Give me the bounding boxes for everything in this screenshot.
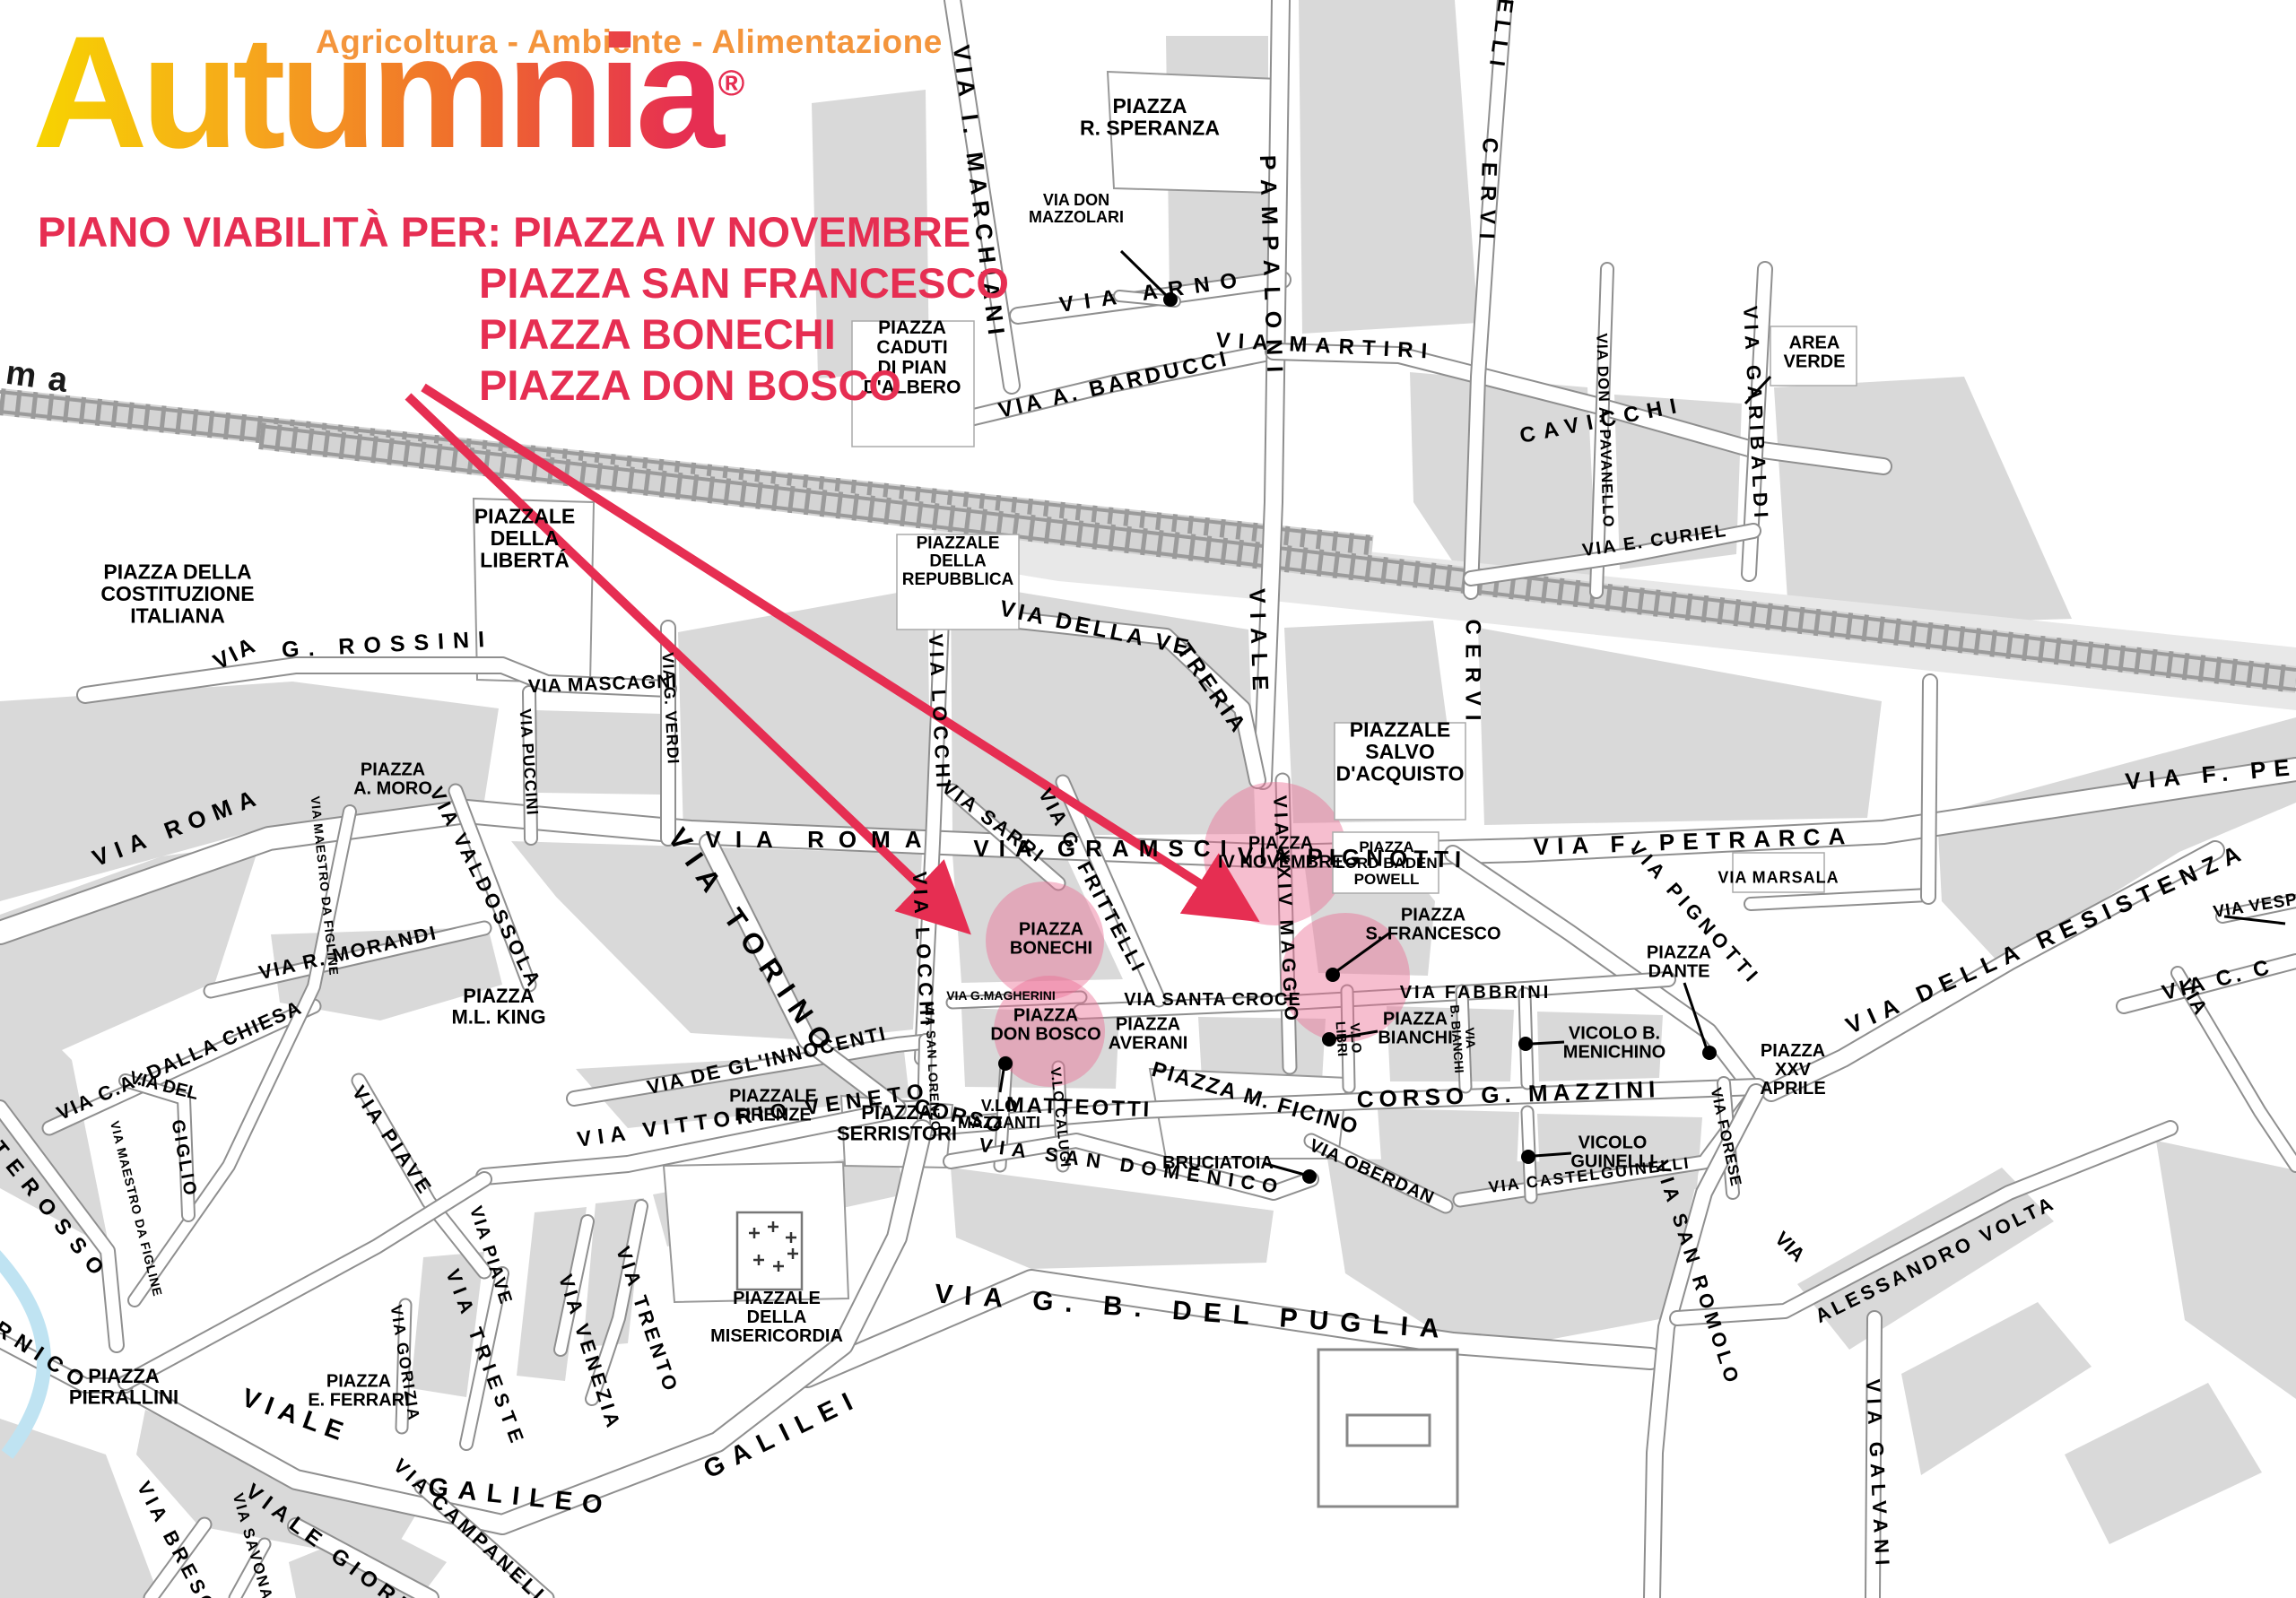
- label-via-a-barducci: VIA A. BARDUCCI: [996, 346, 1232, 423]
- label-via-santa-croce: VIA SANTA CROCE: [1124, 990, 1301, 1010]
- label-cervi: CERVI: [1474, 137, 1501, 248]
- label-piazza-dante: PIAZZADANTE: [1647, 942, 1711, 981]
- label-via: VIA: [1770, 1227, 1810, 1266]
- label-piazza-bianchi: PIAZZABIANCHI: [1378, 1009, 1452, 1047]
- label-via-roma: VIA ROMA: [705, 826, 935, 853]
- title-place-3: PIAZZA BONECHI: [38, 308, 1009, 360]
- viability-title: PIANO VIABILITÀ PER: PIAZZA IV NOVEMBRE …: [38, 206, 1009, 411]
- label-piazza-a-moro: PIAZZAA. MORO: [353, 760, 432, 798]
- label-via-g-magherini: VIA G.MAGHERINI: [946, 988, 1056, 1003]
- leader-dot: [1702, 1046, 1717, 1060]
- label-piazza-m-l-king: PIAZZAM.L. KING: [451, 985, 545, 1028]
- label-elli: ELLI: [1483, 0, 1518, 74]
- label-via-marsala: VIA MARSALA: [1718, 868, 1839, 886]
- label-vicolo-b-menichino: VICOLO B.MENICHINO: [1563, 1023, 1665, 1062]
- block: [1901, 1302, 2092, 1475]
- label-piazza-averani: PIAZZAAVERANI: [1109, 1014, 1188, 1053]
- block: [536, 710, 662, 795]
- road: [1928, 682, 1930, 897]
- title-place-1: PIAZZA IV NOVEMBRE: [513, 208, 970, 256]
- title-place-4: PIAZZA DON BOSCO: [38, 360, 1009, 411]
- block: [1774, 377, 2072, 628]
- label-giglio: GIGLIO: [168, 1118, 201, 1199]
- label-piazza-della-costituzione-italiana: PIAZZA DELLACOSTITUZIONEITALIANA: [100, 560, 254, 628]
- title-prefix: PIANO VIABILITÀ PER:: [38, 208, 501, 256]
- title-place-2: PIAZZA SAN FRANCESCO: [38, 257, 1009, 308]
- label-via-don-mazzolari: VIA DONMAZZOLARI: [1029, 191, 1124, 226]
- block: [0, 1419, 160, 1598]
- registered-mark: ®: [718, 64, 744, 103]
- leader-dot: [1521, 1150, 1535, 1164]
- viability-map-poster: maVIA I. MARCHIANIPIAZZAR. SPERANZAVIA D…: [0, 0, 2296, 1598]
- leader-dot: [1326, 968, 1340, 982]
- cemetery-icon: [737, 1212, 802, 1290]
- block: [2065, 1383, 2262, 1544]
- label-piazza-bonechi: PIAZZABONECHI: [1010, 919, 1092, 958]
- label-cervi: CERVI: [1461, 620, 1485, 730]
- label-via-fabbrini: VIA FABBRINI: [1400, 983, 1552, 1003]
- logo-text: Autumnia: [32, 3, 718, 181]
- label-v-lo-libri: V.LOLIBRI: [1332, 1020, 1364, 1056]
- block: [2156, 1141, 2296, 1399]
- label-via-arno: VIA ARNO: [1057, 267, 1248, 317]
- leader-dot: [1518, 1037, 1533, 1051]
- label-via-c-c: VIA C. C: [2160, 955, 2275, 1006]
- building-footprint: [1318, 1350, 1457, 1507]
- label-piazza-e-ferrari: PIAZZAE. FERRARI: [308, 1371, 409, 1410]
- label-via-piave: VIA PIAVE: [348, 1081, 438, 1200]
- block: [678, 587, 931, 836]
- leader-line: [1532, 1042, 1564, 1044]
- event-logo: Autumnia®: [32, 13, 744, 172]
- label-viale: VIALE: [1244, 588, 1273, 700]
- leader-dot: [998, 1056, 1013, 1071]
- leader-dot: [1302, 1169, 1317, 1184]
- block: [1299, 0, 1478, 334]
- label-area-verde: AREAVERDE: [1784, 333, 1846, 371]
